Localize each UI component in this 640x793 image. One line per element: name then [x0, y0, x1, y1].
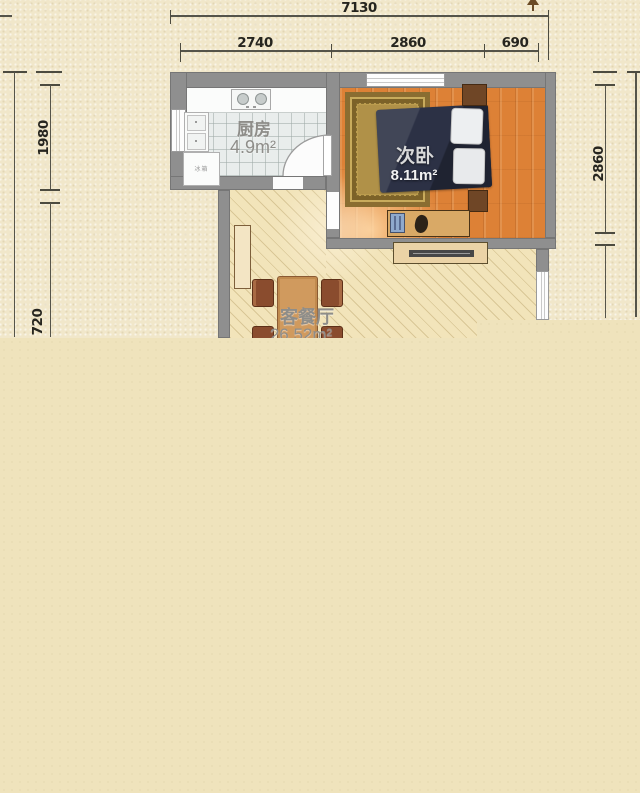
dim-label-2860-right: 2860	[591, 129, 607, 199]
dim-label-690: 690	[489, 35, 541, 51]
pillow	[450, 108, 483, 145]
dim-tick	[36, 71, 62, 73]
desk-chair	[390, 213, 405, 233]
dim-tick	[331, 44, 333, 58]
bedroom-area-label: 8.11m²	[374, 167, 454, 184]
stove	[231, 89, 271, 110]
nightstand	[462, 84, 487, 106]
kitchen-door-leaf	[323, 135, 332, 176]
dim-tick	[484, 44, 486, 58]
wall-top	[170, 72, 556, 88]
wall-living-left	[218, 190, 230, 338]
desk	[387, 210, 470, 237]
bedroom-window	[366, 73, 445, 87]
fridge-label: 冰箱	[184, 164, 219, 173]
burner-icon	[237, 93, 249, 105]
dim-tick	[170, 10, 172, 24]
burner-icon	[255, 93, 267, 105]
dim-tick	[595, 232, 615, 234]
dim-line-left-outer	[14, 72, 16, 337]
dim-tick	[548, 10, 550, 60]
unloaded-image-region	[0, 338, 640, 793]
dim-label-top-total: 7130	[324, 0, 394, 16]
dim-label-2860-top: 2860	[378, 35, 438, 51]
cabinet	[234, 225, 251, 289]
stove-knob-icon	[253, 106, 256, 108]
dim-tick	[593, 71, 617, 73]
drain-icon	[195, 121, 197, 123]
dim-tick	[180, 43, 182, 62]
tv-icon	[409, 250, 474, 257]
dim-line-right-outer	[635, 73, 637, 317]
wall-bedroom-right	[545, 72, 556, 238]
bedroom-door-opening	[327, 190, 339, 231]
dim-label-1980: 1980	[36, 103, 52, 173]
living-window	[536, 271, 549, 320]
unloaded-image-region	[477, 320, 640, 339]
north-arrow-icon	[526, 0, 540, 12]
dim-tick	[627, 71, 640, 73]
dim-line-right-lower	[605, 245, 607, 318]
stove-knob-icon	[246, 106, 249, 108]
sink-basin-icon	[187, 115, 206, 131]
floorplan-canvas: 7130 2740 2860 690 1980 720 2860	[0, 0, 640, 793]
kitchen-door-gap	[273, 177, 303, 189]
dim-tick	[3, 71, 27, 73]
dim-edge-tick-left	[0, 15, 12, 17]
drain-icon	[195, 140, 197, 142]
kitchen-area-label: 4.9m²	[213, 137, 293, 158]
sink-counter	[184, 112, 209, 152]
bag	[413, 214, 429, 234]
pillow	[453, 148, 486, 185]
nightstand	[468, 190, 488, 212]
bedroom-name-label: 次卧	[375, 141, 455, 168]
dim-label-2740: 2740	[225, 35, 285, 51]
dim-tick	[40, 189, 60, 191]
tv-stand	[393, 242, 488, 264]
dim-line-left-lower	[50, 203, 52, 337]
